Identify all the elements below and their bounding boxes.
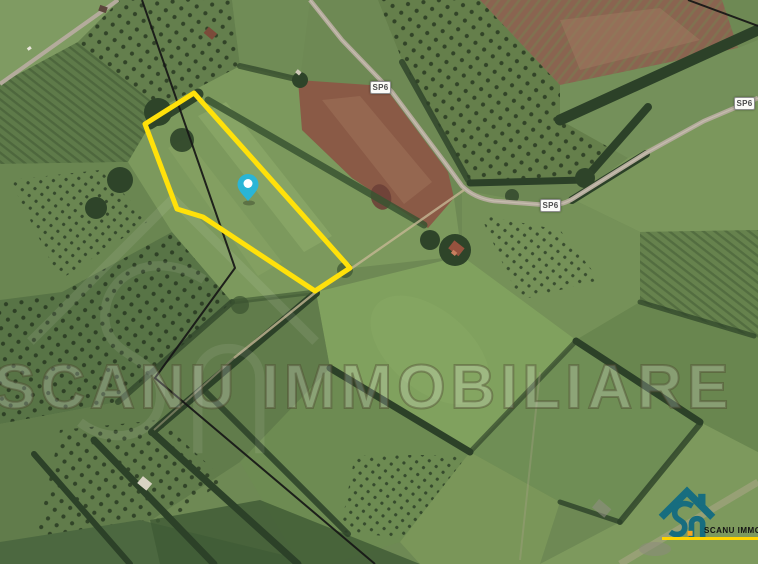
road-label-sp6: SP6 (540, 199, 561, 212)
road-label-sp6: SP6 (734, 97, 755, 110)
pin-dot (244, 179, 253, 188)
pin-shadow (243, 201, 255, 206)
road-label-sp6: SP6 (370, 81, 391, 94)
logo-wordmark: SCANU IMMOBILIARE (704, 526, 758, 535)
logo-underline (662, 537, 758, 540)
satellite-map-image: SP6SP6SP6 SCANU IMMOBILIARE SCANU IMMOBI… (0, 0, 758, 564)
